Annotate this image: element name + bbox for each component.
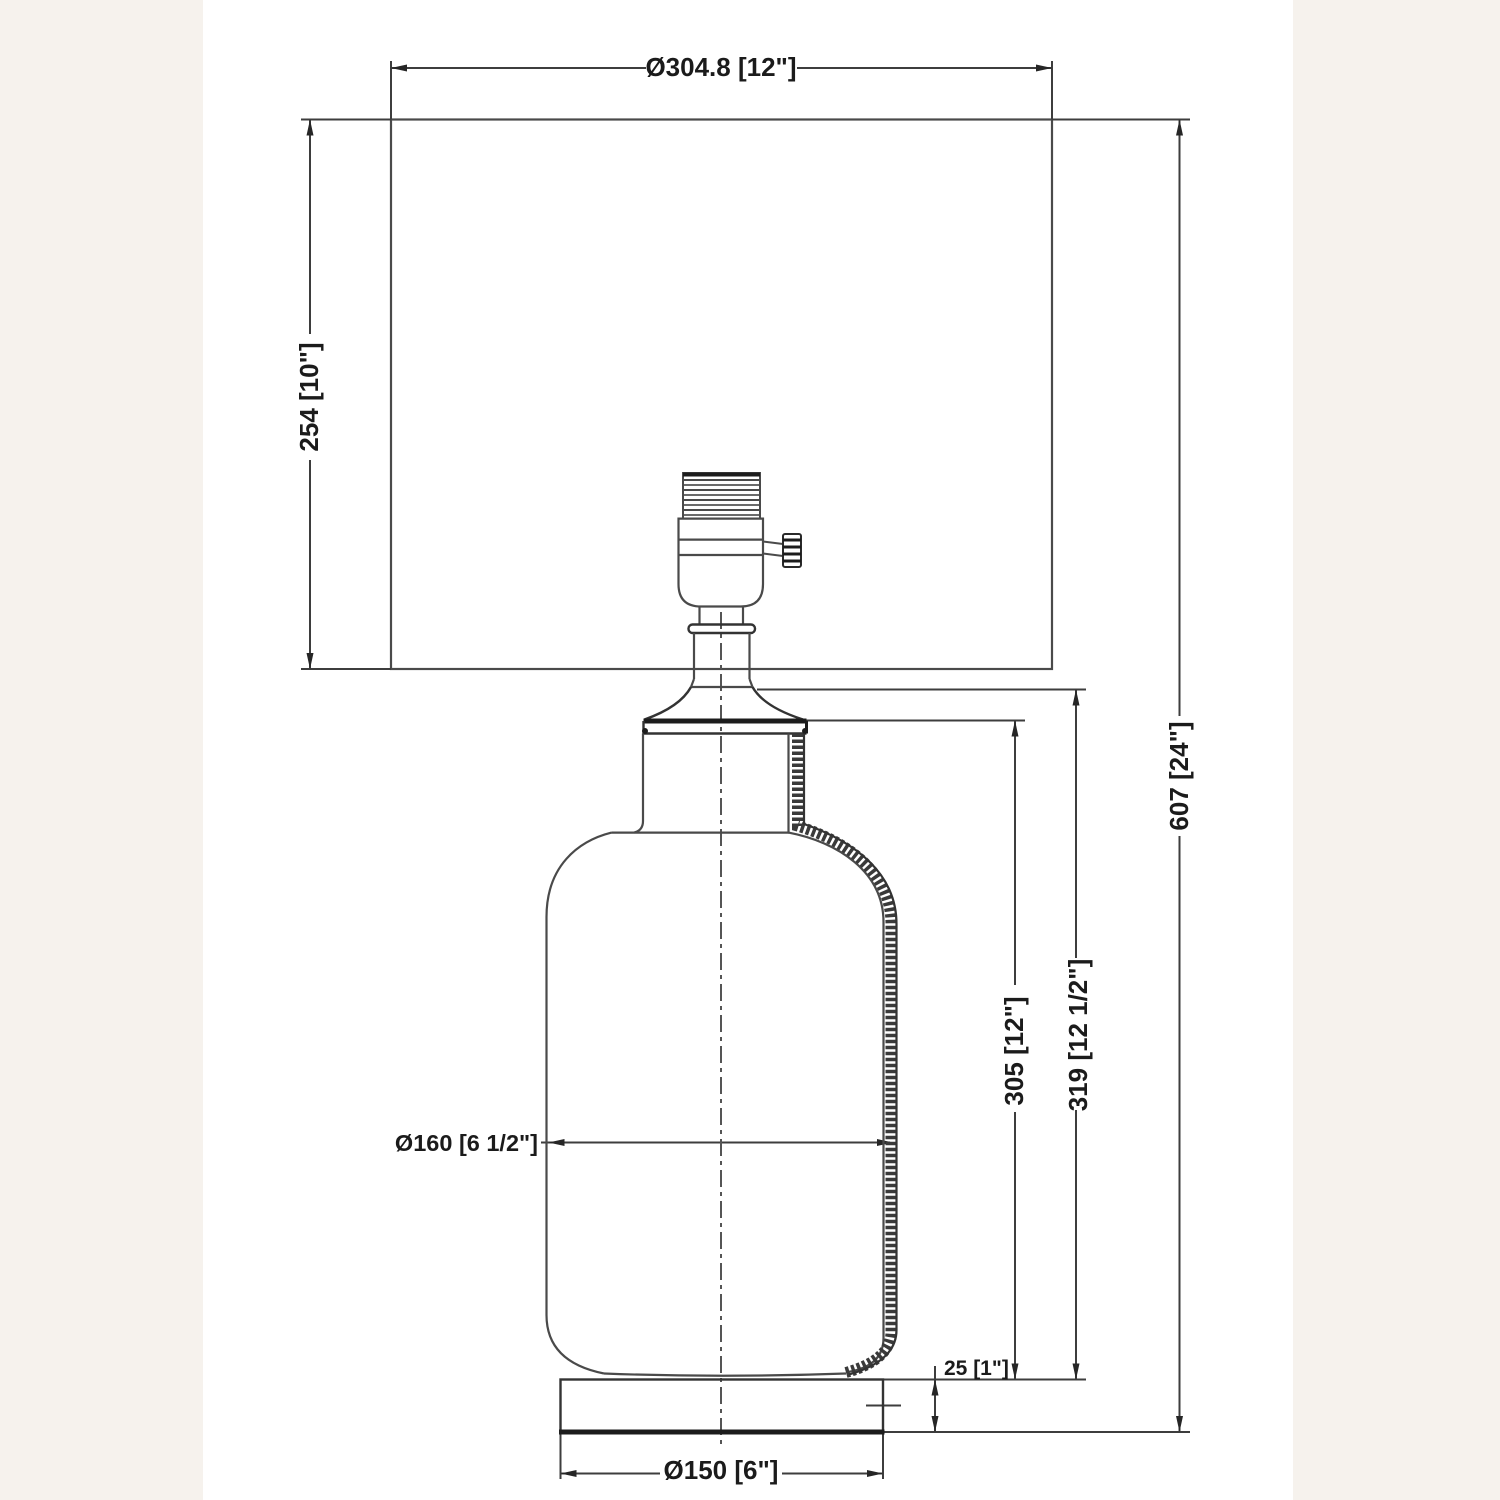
- svg-text:319 [12 1/2"]: 319 [12 1/2"]: [1063, 959, 1093, 1112]
- svg-text:Ø160 [6 1/2"]: Ø160 [6 1/2"]: [395, 1130, 538, 1156]
- svg-text:Ø304.8 [12"]: Ø304.8 [12"]: [645, 52, 796, 82]
- svg-text:607 [24"]: 607 [24"]: [1164, 721, 1194, 830]
- svg-text:254 [10"]: 254 [10"]: [294, 342, 324, 451]
- svg-text:305 [12"]: 305 [12"]: [999, 996, 1029, 1105]
- svg-text:Ø150 [6"]: Ø150 [6"]: [664, 1455, 779, 1485]
- svg-text:25 [1"]: 25 [1"]: [944, 1357, 1009, 1380]
